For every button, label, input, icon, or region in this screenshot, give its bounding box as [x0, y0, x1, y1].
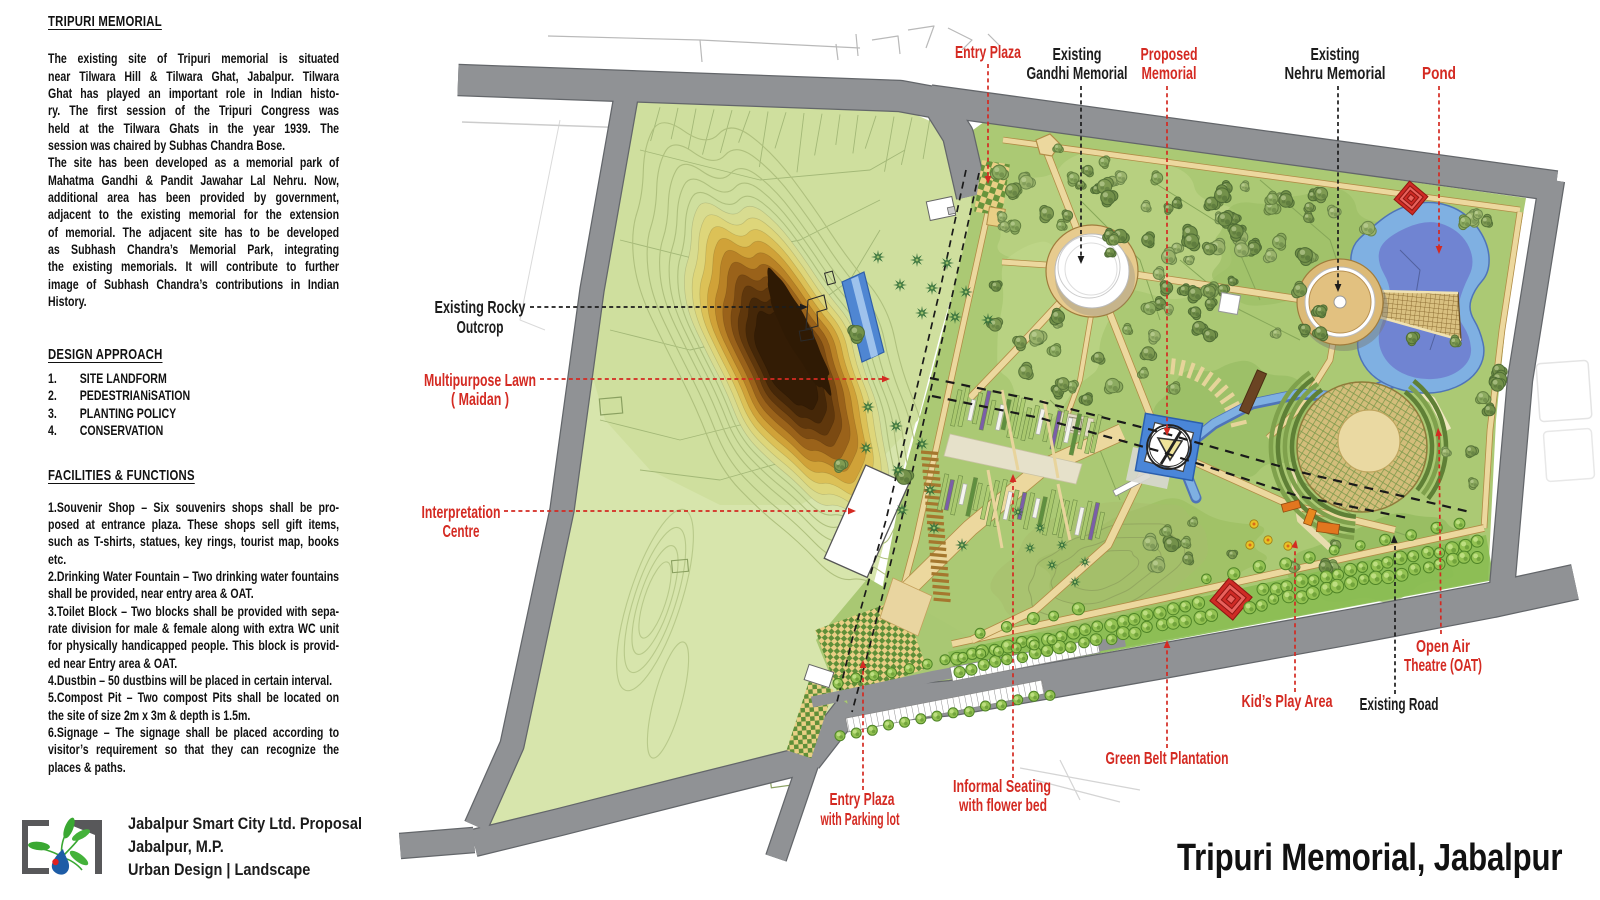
- svg-text:Informal Seating: Informal Seating: [953, 776, 1051, 796]
- svg-text:Multipurpose Lawn: Multipurpose Lawn: [424, 370, 536, 390]
- svg-text:Green Belt Plantation: Green Belt Plantation: [1106, 748, 1229, 768]
- svg-text:with flower bed: with flower bed: [958, 795, 1047, 815]
- svg-text:Entry Plaza: Entry Plaza: [830, 789, 895, 809]
- svg-text:Entry Plaza: Entry Plaza: [955, 42, 1021, 62]
- svg-text:( Maidan ): ( Maidan ): [451, 389, 509, 409]
- svg-text:Existing Road: Existing Road: [1360, 694, 1439, 714]
- svg-text:Nehru Memorial: Nehru Memorial: [1285, 63, 1386, 83]
- svg-text:Existing: Existing: [1053, 44, 1102, 64]
- svg-text:with Parking lot: with Parking lot: [820, 809, 900, 829]
- svg-text:Interpretation: Interpretation: [422, 502, 501, 522]
- svg-text:Existing Rocky: Existing Rocky: [435, 297, 526, 317]
- svg-text:Memorial: Memorial: [1142, 63, 1197, 83]
- svg-text:Theatre (OAT): Theatre (OAT): [1404, 655, 1482, 675]
- svg-text:Existing: Existing: [1311, 44, 1360, 64]
- svg-text:Gandhi Memorial: Gandhi Memorial: [1027, 63, 1128, 83]
- svg-text:Open Air: Open Air: [1416, 636, 1470, 656]
- svg-text:Proposed: Proposed: [1141, 44, 1198, 64]
- svg-text:Centre: Centre: [443, 521, 480, 541]
- svg-text:Outcrop: Outcrop: [457, 317, 504, 337]
- svg-text:Pond: Pond: [1422, 63, 1456, 83]
- svg-text:Kid’s Play Area: Kid’s Play Area: [1242, 691, 1333, 711]
